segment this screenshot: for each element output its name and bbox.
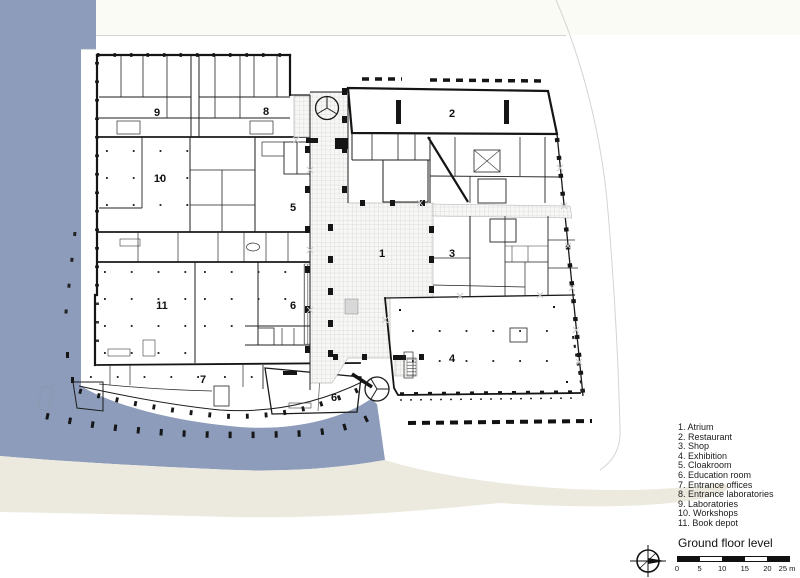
- scale-tick: 25 m: [779, 564, 796, 573]
- stair-block: [510, 328, 527, 342]
- scale-bar: 0 5 10 15 20 25 m: [677, 556, 790, 572]
- label-book-depot: 11: [156, 300, 168, 312]
- label-workshops: 10: [154, 173, 166, 185]
- label-education-annex: 6: [331, 392, 337, 404]
- beach-sand: [0, 456, 728, 517]
- drawing-title: Ground floor level: [678, 536, 773, 550]
- stair-education: [258, 328, 274, 345]
- corridor-grid: [433, 204, 572, 218]
- scale-segment: [700, 557, 722, 561]
- tiled-floor-grid: [294, 92, 433, 383]
- north-arrow-icon: [627, 540, 669, 578]
- room-legend: 1. Atrium 2. Restaurant 3. Shop 4. Exhib…: [678, 423, 774, 529]
- lift-block: [345, 299, 358, 314]
- label-atrium: 1: [379, 248, 385, 260]
- scale-segment: [767, 557, 789, 561]
- label-entrance-laboratories: 8: [263, 106, 269, 118]
- revolving-door-south-icon: [365, 377, 389, 401]
- label-exhibition: 4: [449, 353, 456, 365]
- label-laboratories: 9: [154, 107, 160, 119]
- fixture-oval: [247, 243, 260, 251]
- label-restaurant: 2: [449, 108, 455, 120]
- exhibition-hall: [385, 298, 580, 395]
- stair-block: [478, 179, 506, 203]
- scale-segment: [722, 557, 744, 561]
- label-cloakroom: 5: [290, 202, 296, 214]
- scale-segment: [745, 557, 767, 561]
- scale-tick: 10: [718, 564, 726, 573]
- window-mullion-strip: [304, 264, 310, 344]
- path-dots: [400, 398, 580, 400]
- diagonal-wall: [428, 137, 468, 202]
- scale-tick-labels: 0 5 10 15 20 25 m: [677, 562, 790, 572]
- stair-wing: [214, 386, 229, 406]
- grand-stair: [383, 160, 428, 202]
- floor-plan-page: 9 8 10 5 2 1 3 11 6 7 4 6 1. Atrium 2. R…: [0, 0, 800, 578]
- small-stair: [143, 340, 155, 356]
- left-building: [95, 55, 310, 365]
- scale-tick: 20: [763, 564, 771, 573]
- legend-item: 11. Book depot: [678, 519, 774, 529]
- pergola-dashes: [408, 421, 592, 423]
- east-wall-piers: [557, 138, 583, 394]
- canopy-dashes: [430, 80, 543, 81]
- site-upper-band: [0, 0, 800, 35]
- label-entrance-offices: 7: [200, 374, 206, 386]
- stair-down: [407, 358, 416, 376]
- hall-columns: [90, 151, 302, 377]
- scale-segment: [678, 557, 700, 561]
- equipment-hatch: [250, 121, 273, 134]
- equipment-hatch: [117, 121, 140, 134]
- site-boundary-curve: [556, 0, 620, 470]
- scale-tick: 15: [741, 564, 749, 573]
- small-stair: [120, 239, 140, 246]
- stair-block: [490, 219, 516, 242]
- scale-tick: 5: [698, 564, 702, 573]
- label-shop: 3: [449, 248, 455, 260]
- small-stair: [108, 349, 130, 356]
- water-pile: [66, 352, 69, 358]
- label-education-room: 6: [290, 300, 296, 312]
- scale-tick: 0: [675, 564, 679, 573]
